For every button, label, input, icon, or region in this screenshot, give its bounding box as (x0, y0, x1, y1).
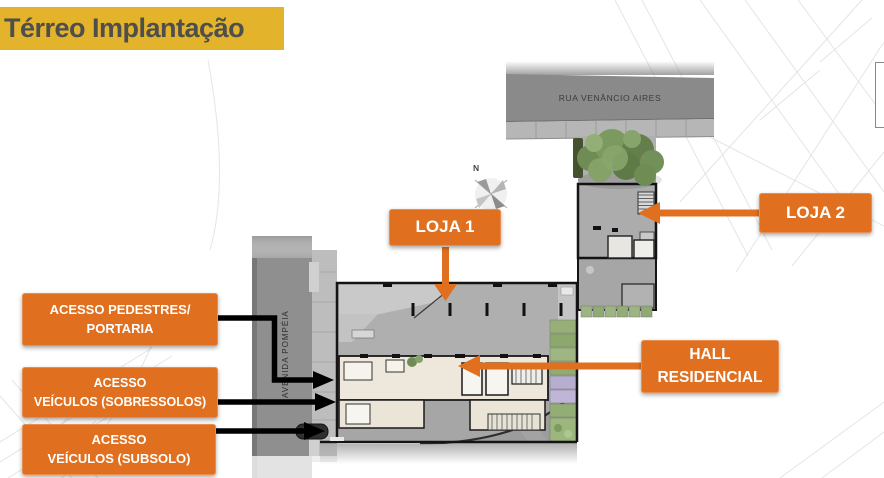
street-rua-venancio-aires: RUA VENÂNCIO AIRES (506, 61, 714, 139)
edge-partial-box (875, 62, 884, 128)
page-title: Térreo Implantação (0, 7, 284, 50)
callout-subsolo-line1: ACESSO (92, 431, 147, 450)
callout-sobressolos-line2: VEÍCULOS (SOBRESSOLOS) (34, 393, 206, 411)
callout-sobressolos-line1: ACESSO (94, 374, 147, 392)
main-building (296, 283, 577, 464)
callout-hall-residencial: HALL RESIDENCIAL (641, 340, 779, 393)
compass-label: N (473, 163, 479, 173)
callout-acesso-veiculos-subsolo: ACESSO VEÍCULOS (SUBSOLO) (22, 424, 216, 475)
loja2-arrow (638, 202, 760, 224)
street-top-label: RUA VENÂNCIO AIRES (559, 93, 661, 103)
page-title-text: Térreo Implantação (4, 13, 244, 44)
callout-loja-1: LOJA 1 (389, 209, 501, 246)
callout-acesso-veiculos-sobressolos: ACESSO VEÍCULOS (SOBRESSOLOS) (22, 367, 218, 418)
garden-strip (550, 320, 576, 441)
street-left-label: AVENIDA POMPÉIA (281, 310, 290, 398)
callout-subsolo-line2: VEÍCULOS (SUBSOLO) (47, 450, 190, 469)
compass-icon: N (473, 163, 507, 210)
callout-hall-line1: HALL (689, 344, 730, 366)
callout-acesso-pedestres: ACESSO PEDESTRES/ PORTARIA (22, 293, 218, 346)
callout-loja-2: LOJA 2 (759, 193, 872, 233)
callout-loja-2-label: LOJA 2 (786, 201, 845, 226)
callout-acesso-pedestres-line2: PORTARIA (87, 320, 154, 339)
callout-acesso-pedestres-line1: ACESSO PEDESTRES/ (50, 301, 191, 320)
callout-loja-1-label: LOJA 1 (416, 215, 475, 240)
slide: RUA VENÂNCIO AIRES AVENIDA (0, 0, 884, 478)
callout-hall-line2: RESIDENCIAL (657, 367, 762, 389)
loja2-parcel (573, 129, 664, 317)
